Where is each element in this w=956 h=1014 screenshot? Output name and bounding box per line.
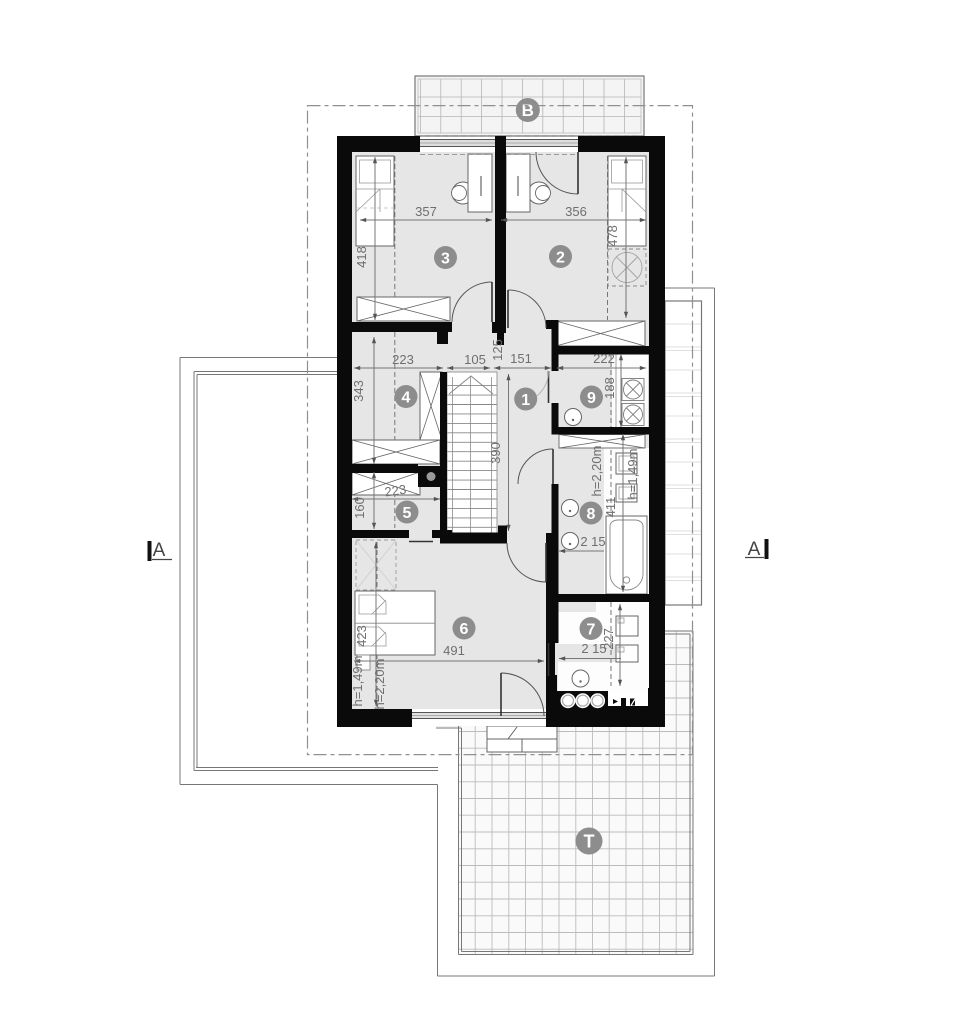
- svg-text:105: 105: [464, 352, 486, 367]
- svg-text:4: 4: [402, 389, 411, 406]
- svg-text:478: 478: [605, 225, 620, 247]
- svg-text:h=2,20m: h=2,20m: [589, 446, 604, 497]
- svg-text:188: 188: [602, 377, 617, 399]
- svg-text:357: 357: [415, 204, 437, 219]
- svg-text:390: 390: [488, 442, 503, 464]
- svg-text:2: 2: [556, 249, 565, 266]
- svg-text:A: A: [153, 540, 166, 561]
- svg-text:418: 418: [354, 246, 369, 268]
- svg-text:227: 227: [601, 628, 616, 650]
- svg-text:B: B: [522, 101, 534, 120]
- svg-text:5: 5: [403, 505, 412, 522]
- svg-text:3: 3: [441, 250, 450, 267]
- svg-text:356: 356: [565, 204, 587, 219]
- svg-text:h=2,20m: h=2,20m: [372, 659, 387, 710]
- svg-text:T: T: [584, 831, 595, 851]
- svg-text:411: 411: [603, 497, 618, 518]
- svg-text:9: 9: [587, 390, 596, 407]
- svg-text:6: 6: [460, 621, 469, 638]
- svg-text:h=1,49m: h=1,49m: [625, 449, 640, 500]
- svg-text:491: 491: [443, 643, 465, 658]
- svg-text:8: 8: [587, 506, 596, 523]
- svg-text:222: 222: [593, 351, 615, 366]
- svg-text:h=1,49m: h=1,49m: [350, 656, 365, 707]
- svg-text:423: 423: [354, 625, 369, 647]
- svg-text:125: 125: [490, 339, 505, 361]
- svg-text:A: A: [748, 539, 761, 560]
- svg-text:151: 151: [510, 351, 532, 366]
- svg-text:343: 343: [351, 380, 366, 402]
- svg-text:223: 223: [392, 352, 414, 367]
- svg-text:160: 160: [352, 497, 367, 519]
- svg-text:223: 223: [384, 482, 408, 500]
- svg-text:7: 7: [587, 621, 596, 638]
- svg-text:2 15: 2 15: [580, 534, 605, 549]
- svg-text:1: 1: [521, 392, 530, 409]
